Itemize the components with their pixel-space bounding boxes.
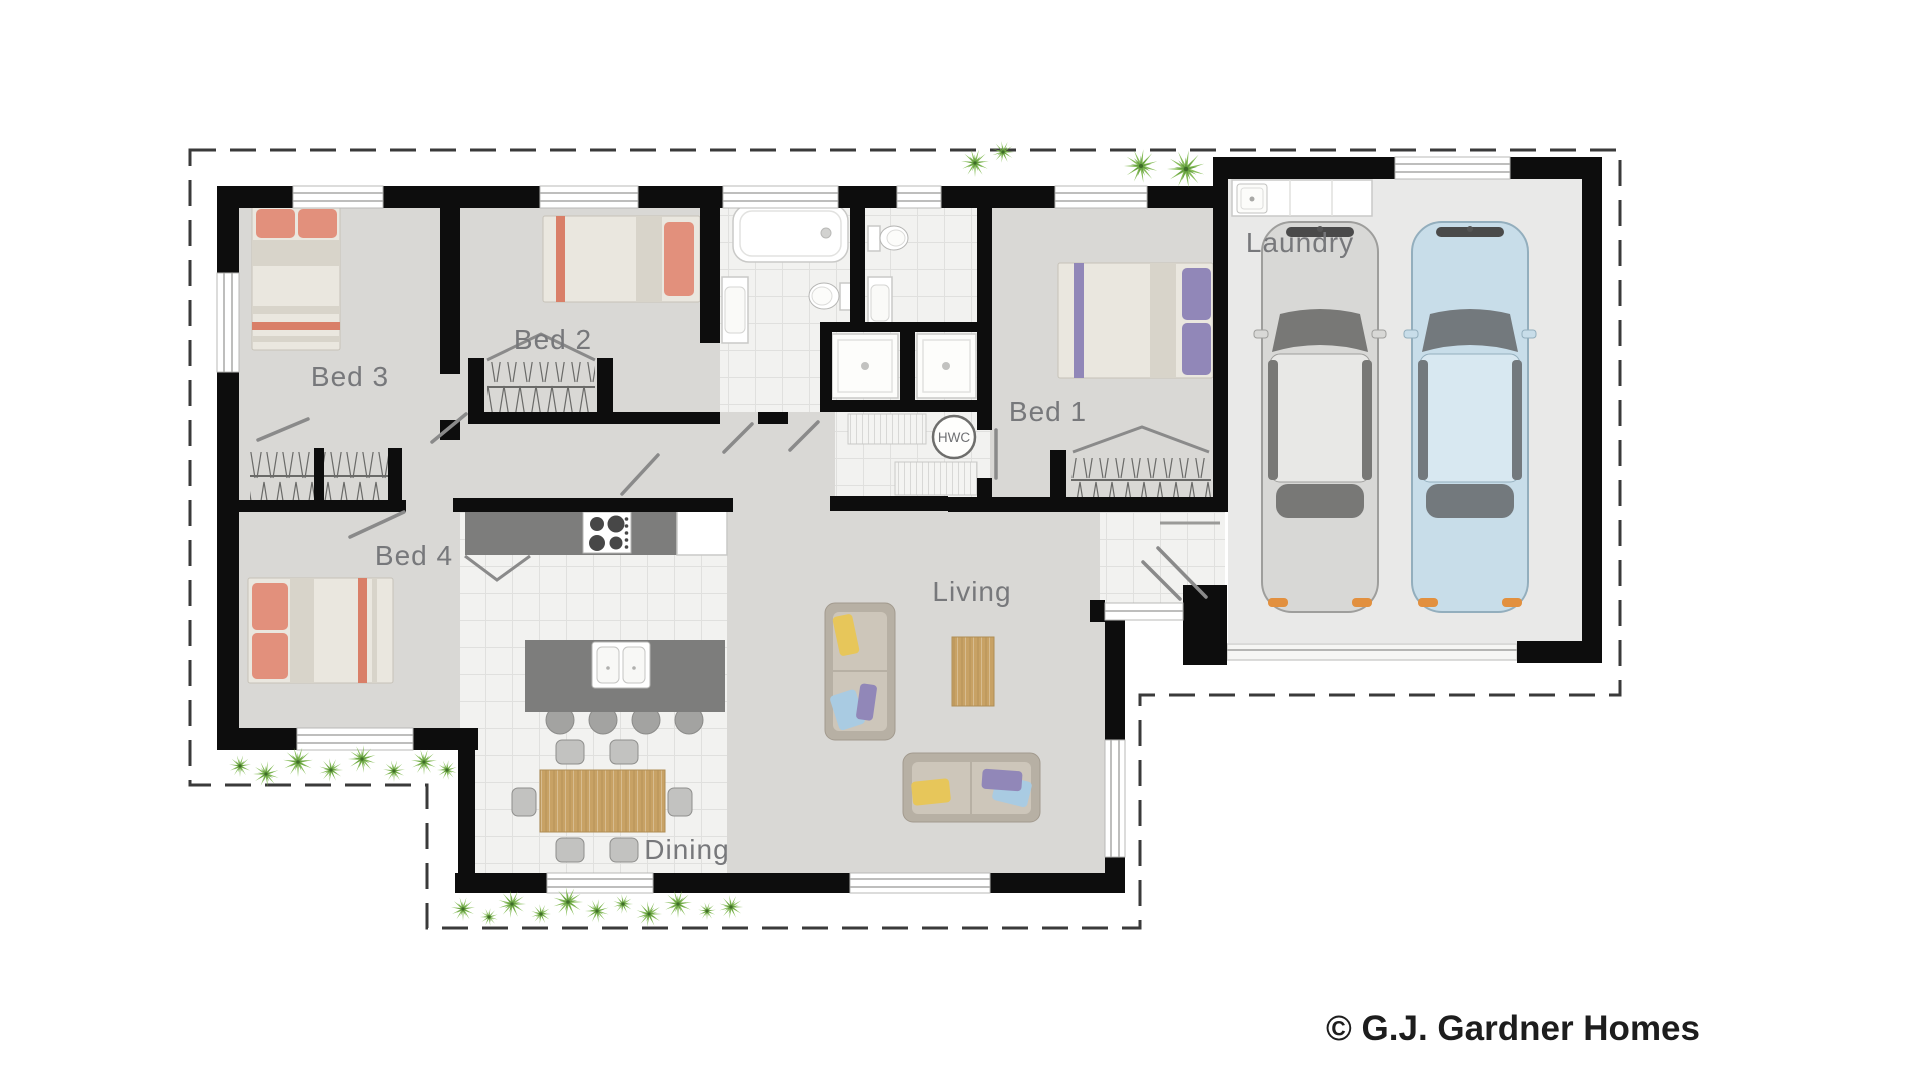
plant [383, 760, 405, 782]
plant [283, 748, 313, 777]
sofa-horizontal [903, 753, 1040, 822]
bathtub [733, 205, 848, 262]
plant [253, 761, 279, 787]
car-blue [1404, 222, 1536, 612]
plant [961, 150, 989, 177]
plant [480, 908, 498, 926]
dining-chair [610, 740, 638, 764]
garage-window [1395, 157, 1510, 179]
dining-chair [556, 740, 584, 764]
dining-chair [512, 788, 536, 816]
label-laundry: Laundry [1246, 227, 1354, 258]
coffee-table [952, 637, 994, 706]
bed4-window [297, 728, 413, 750]
plant [585, 899, 609, 923]
front-door [1105, 603, 1183, 620]
linen-cupboard [848, 414, 926, 444]
laundry-fixtures [1232, 180, 1372, 216]
bed3-top-window [293, 186, 383, 208]
linen-cupboard-2 [895, 462, 977, 495]
plant [229, 755, 251, 777]
plant [531, 904, 551, 924]
plant [637, 901, 663, 927]
living-window [850, 873, 990, 893]
shower [832, 334, 898, 398]
plant [437, 760, 457, 780]
label-bed4: Bed 4 [375, 540, 453, 571]
plant [613, 894, 633, 914]
cooktop [583, 512, 631, 553]
wc-vanity [868, 277, 892, 329]
kitchen-bench [465, 510, 677, 555]
bed4-bed [248, 578, 393, 683]
label-bed2: Bed 2 [514, 324, 592, 355]
hwc-label: HWC [938, 430, 970, 445]
plant [1124, 149, 1157, 183]
plant [451, 898, 475, 922]
dining-chair [668, 788, 692, 816]
bed3-bed [252, 204, 340, 350]
dining-table [540, 770, 665, 832]
hot-water-cylinder: HWC [933, 416, 975, 458]
bed2-bed [543, 216, 700, 302]
wc-toilet [868, 226, 908, 251]
garage-door [1227, 644, 1517, 660]
shower-2 [917, 334, 976, 398]
plant [320, 758, 344, 782]
label-living: Living [932, 576, 1011, 607]
vanity [722, 277, 748, 343]
dining-chair [610, 838, 638, 862]
plant [664, 891, 692, 918]
dining-window [547, 873, 653, 893]
island-sink [592, 642, 650, 688]
plant [992, 141, 1014, 163]
fridge-space [677, 510, 727, 555]
wc-window [897, 186, 941, 208]
car-gray [1254, 222, 1386, 612]
bed3-side-window [217, 273, 239, 372]
floor-plan-drawing: HWC [0, 0, 1920, 1080]
plant [1167, 150, 1204, 188]
toilet [809, 283, 853, 310]
plant [720, 895, 744, 919]
living-side-window [1105, 740, 1125, 857]
copyright: © G.J. Gardner Homes [1326, 1009, 1700, 1048]
dining-chair [556, 838, 584, 862]
bed1-window [1055, 186, 1147, 208]
bathroom-window [723, 186, 838, 208]
plant [499, 890, 526, 918]
plant [698, 902, 716, 920]
label-dining: Dining [644, 834, 729, 865]
label-bed1: Bed 1 [1009, 396, 1087, 427]
plant [411, 750, 437, 776]
floor-plan-page: HWC [0, 0, 1920, 1080]
bed2-top-window [540, 186, 638, 208]
label-bed3: Bed 3 [311, 361, 389, 392]
bed1-bed [1058, 263, 1213, 378]
sofa-vertical [825, 603, 895, 740]
